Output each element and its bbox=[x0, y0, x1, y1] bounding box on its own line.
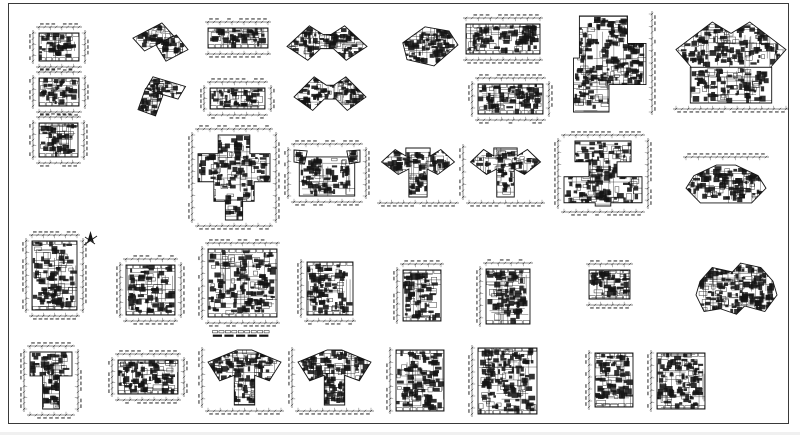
floor-plan-p24 bbox=[298, 260, 355, 324]
floor-plan-p36 bbox=[648, 351, 707, 411]
floor-plan-p18 bbox=[460, 145, 544, 206]
cad-sheet-canvas bbox=[0, 0, 800, 435]
floor-plan-p06 bbox=[206, 19, 270, 57]
floor-plan-p22 bbox=[117, 256, 184, 324]
floor-plan-p02 bbox=[30, 69, 88, 115]
floor-plan-p10 bbox=[396, 24, 460, 70]
floor-plan-p35 bbox=[586, 351, 635, 409]
floor-plan-p29 bbox=[21, 343, 81, 418]
floor-plan-p33 bbox=[387, 348, 446, 413]
floor-plan-p25 bbox=[394, 261, 443, 323]
floor-plan-p01 bbox=[30, 24, 88, 70]
floor-plan-p28 bbox=[694, 260, 779, 319]
floor-plan-p27 bbox=[587, 261, 632, 308]
floor-plan-p04 bbox=[128, 20, 190, 70]
floor-plan-p15 bbox=[189, 126, 279, 229]
floor-plan-p21 bbox=[23, 232, 86, 319]
floor-plan-p05 bbox=[136, 74, 190, 120]
floor-plan-p19 bbox=[555, 132, 651, 215]
floor-plan-p31 bbox=[199, 348, 283, 414]
floor-plan-p03 bbox=[30, 114, 87, 166]
floor-plan-p17 bbox=[378, 145, 458, 206]
floor-plan-p11 bbox=[464, 15, 542, 63]
floor-plan-p16 bbox=[285, 141, 369, 205]
floor-plan-p23 bbox=[199, 240, 279, 326]
floor-plan-p32 bbox=[289, 348, 373, 414]
floor-plan-p13 bbox=[570, 12, 655, 114]
floor-plan-p09 bbox=[292, 74, 368, 120]
floor-plan-p20 bbox=[684, 154, 768, 207]
floor-plan-p34 bbox=[469, 346, 539, 416]
floor-plan-p12 bbox=[469, 75, 552, 123]
floor-plan-p14 bbox=[674, 20, 788, 112]
plan-caption-strip bbox=[212, 325, 270, 343]
north-arrow-icon bbox=[82, 231, 99, 253]
floor-plan-p08 bbox=[285, 23, 369, 70]
floor-plan-p07 bbox=[201, 79, 274, 118]
floor-plan-p30 bbox=[109, 351, 187, 403]
floor-plan-p26 bbox=[477, 260, 532, 326]
